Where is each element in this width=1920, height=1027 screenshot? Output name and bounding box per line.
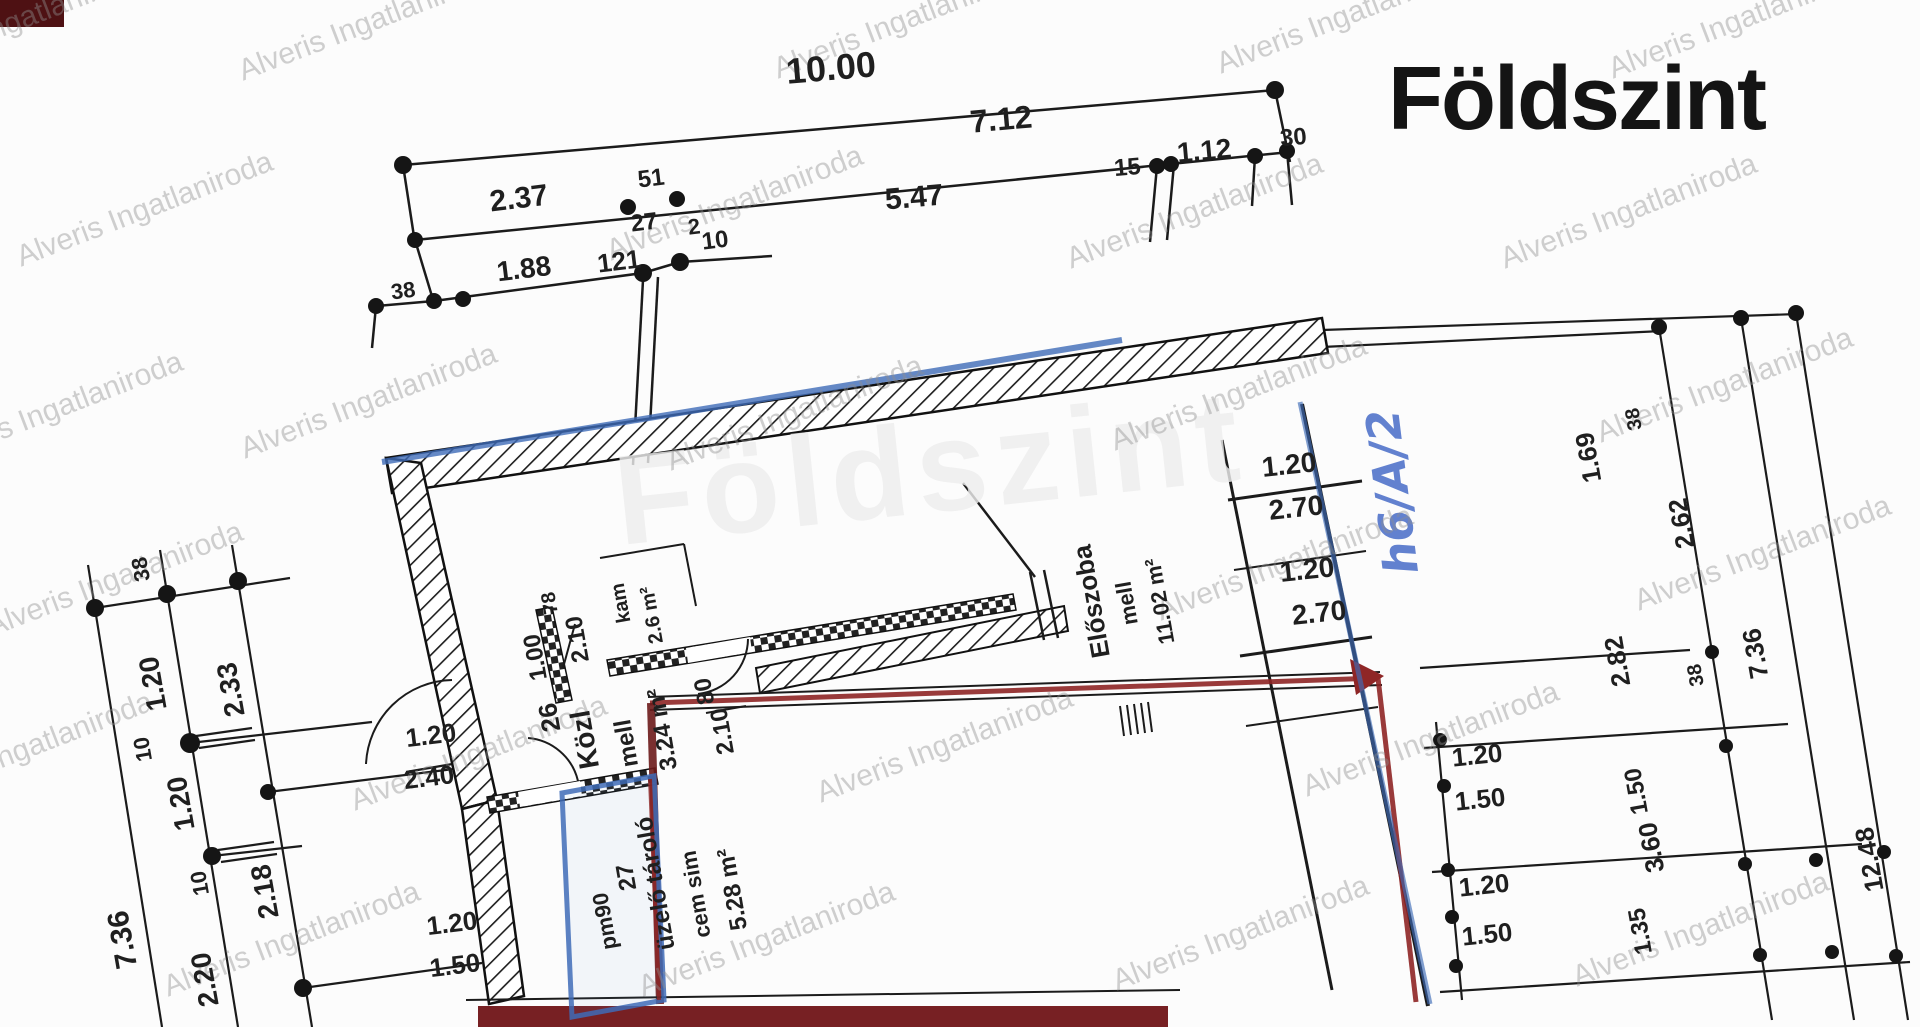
room-label: kam bbox=[607, 581, 636, 624]
dim-top: 1.12 bbox=[1176, 133, 1233, 169]
dim-right: 2.62 bbox=[1662, 496, 1700, 551]
dim-top: 30 bbox=[1279, 123, 1308, 152]
dim-left: 1.20 bbox=[425, 905, 479, 941]
door-gap bbox=[686, 637, 752, 663]
page-title: Földszint bbox=[1388, 48, 1765, 151]
dim-left: 10 bbox=[128, 735, 157, 763]
dim-left: 38 bbox=[126, 555, 155, 583]
room-area: 3.24 m² bbox=[642, 686, 683, 772]
watermark: Alveris Ingatlaniroda bbox=[234, 0, 500, 87]
dim-right: 38 bbox=[1621, 406, 1647, 432]
room-label: mell bbox=[1110, 579, 1142, 627]
dim-top: 51 bbox=[636, 164, 666, 194]
dim-right: 1.20 bbox=[1278, 551, 1335, 588]
watermark: Alveris Ingatlaniroda bbox=[0, 0, 150, 85]
room-label: mell bbox=[609, 717, 644, 769]
door-spec: 78 bbox=[537, 590, 563, 616]
dim-left: 2.18 bbox=[245, 862, 285, 921]
door-spec: 1.20 bbox=[404, 717, 458, 753]
dim-top: 121 bbox=[596, 244, 643, 279]
door-spec: 2.40 bbox=[402, 759, 456, 795]
wall-dim: 27 bbox=[611, 862, 642, 893]
watermark: Alveris Ingatlaniroda bbox=[0, 515, 248, 643]
room-label: Előszoba bbox=[1066, 542, 1115, 660]
handwritten-unit-number: h6/A/2 bbox=[1355, 406, 1429, 577]
dim-left: 1.20 bbox=[161, 774, 201, 833]
dim-top: 2.37 bbox=[488, 179, 550, 219]
dim-left: 7.36 bbox=[101, 908, 144, 971]
dim-right: 12.48 bbox=[1849, 825, 1890, 894]
watermark: Alveris Ingatlaniroda bbox=[1496, 147, 1762, 275]
room-area: 2.6 m² bbox=[636, 584, 668, 645]
dim-top: 1.88 bbox=[495, 250, 553, 287]
watermark: Alveris Ingatlaniroda bbox=[12, 145, 278, 273]
door-spec: 2.10 bbox=[705, 706, 740, 757]
dim-right: 1.20 bbox=[1450, 737, 1503, 772]
dim-top: 27 bbox=[629, 208, 659, 238]
watermark: Alveris Ingatlaniroda bbox=[1298, 675, 1564, 803]
dim-right: 1.50 bbox=[1460, 916, 1513, 951]
dim-left: 2.33 bbox=[211, 660, 251, 719]
dim-top: 5.47 bbox=[884, 179, 945, 217]
dim-left: 10 bbox=[185, 869, 214, 897]
dim-right: 1.50 bbox=[1619, 766, 1654, 817]
threshold-comb bbox=[1120, 702, 1152, 736]
dim-right: 1.20 bbox=[1457, 867, 1510, 902]
dim-top: 38 bbox=[389, 277, 416, 305]
door-spec: 80 bbox=[689, 676, 720, 707]
dim-right: 1.50 bbox=[1453, 781, 1506, 816]
floorplan-drawing: Földszint h6/A/2 Alveris IngatlanirodaAl… bbox=[0, 0, 1920, 1027]
dim-top: 10.00 bbox=[784, 43, 877, 92]
watermark: Alveris Ingatlaniroda bbox=[602, 139, 868, 267]
dim-top: 15 bbox=[1113, 153, 1142, 182]
wall-dim: 26 bbox=[532, 701, 567, 735]
dim-left: 1.50 bbox=[428, 947, 482, 983]
watermark: Alveris Ingatlaniroda bbox=[0, 345, 188, 473]
watermark: Alveris Ingatlaniroda bbox=[1108, 869, 1374, 997]
dim-top: 10 bbox=[700, 226, 730, 256]
room-label: cem sim bbox=[676, 849, 716, 940]
dim-right: 2.70 bbox=[1290, 594, 1347, 631]
dim-top: 7.12 bbox=[968, 98, 1033, 139]
watermark: Alveris Ingatlaniroda bbox=[1568, 865, 1834, 993]
room-area: 5.28 m² bbox=[712, 846, 753, 932]
dim-right: 3.60 bbox=[1632, 820, 1670, 875]
dim-right: 1.20 bbox=[1260, 446, 1317, 483]
dim-right: 2.70 bbox=[1267, 489, 1324, 526]
dim-right: 2.82 bbox=[1598, 634, 1636, 689]
floorplan-scan: Földszint h6/A/2 Alveris IngatlanirodaAl… bbox=[0, 0, 1920, 1027]
dim-right: 38 bbox=[1683, 662, 1709, 688]
dim-right: 7.36 bbox=[1736, 626, 1774, 681]
